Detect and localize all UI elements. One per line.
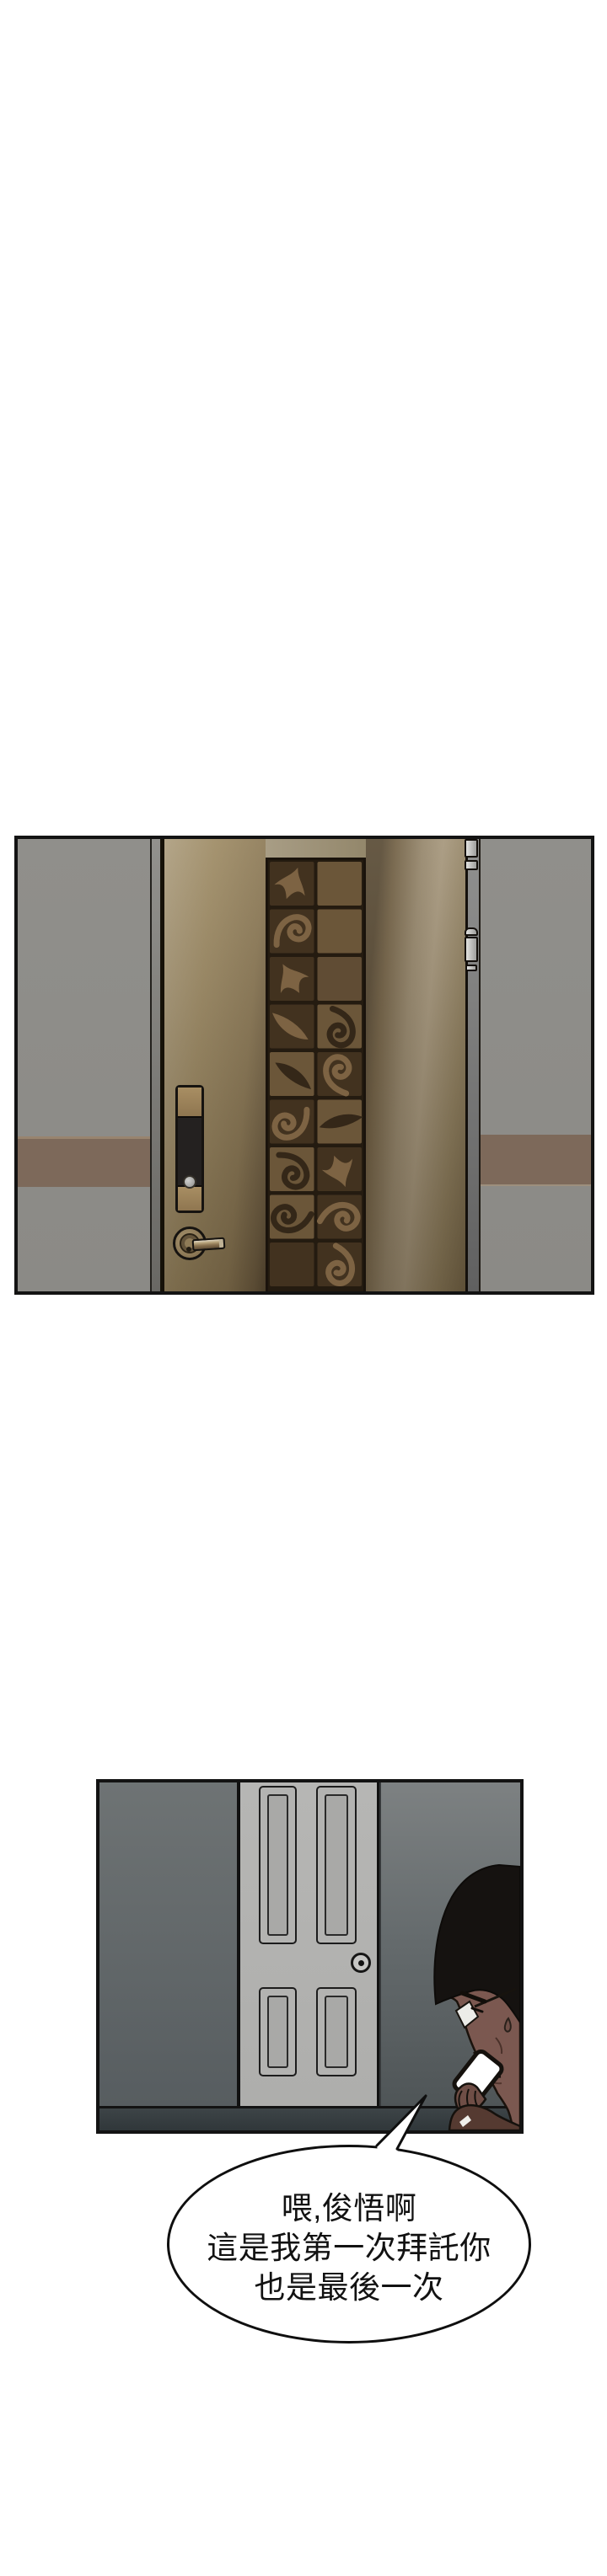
right-wall (481, 839, 591, 1291)
door-jamb-left (150, 839, 162, 1291)
panel-entry-door (14, 836, 594, 1295)
bubble-line-3: 也是最後一次 (255, 2268, 444, 2307)
lock-plate-bottom (178, 1185, 201, 1211)
speech-bubble: 喂,俊悟啊 這是我第一次拜託你 也是最後一次 (167, 2145, 531, 2344)
bubble-line-1: 喂,俊悟啊 (282, 2189, 417, 2228)
door-lever-handle (192, 1237, 226, 1252)
lock-plate-top (178, 1088, 201, 1118)
hinge-mid-base (465, 965, 477, 971)
hinge-mid-cap (465, 927, 478, 936)
wall-accent-stripe (481, 1135, 591, 1186)
tile-pattern (268, 860, 363, 1294)
panel-man-on-phone (96, 1779, 524, 2134)
door-recess-panel (259, 1786, 297, 1944)
lock-knob (183, 1175, 196, 1189)
tile-column-header (266, 839, 366, 858)
hinge-strip (465, 839, 481, 1291)
left-wall (18, 839, 150, 1291)
deadbolt-lock (175, 1085, 204, 1213)
door-recess-panel (259, 1987, 297, 2076)
bubble-line-2: 這是我第一次拜託你 (207, 2228, 492, 2268)
door-keyhole (351, 1953, 371, 1973)
hinge-top-b (465, 860, 478, 870)
keyhole-icon (186, 1247, 191, 1252)
wall-accent-stripe (18, 1136, 150, 1187)
hinge-top-a (465, 839, 478, 858)
door-recess-panel (316, 1786, 357, 1944)
entry-door (162, 839, 465, 1291)
hinge-mid-bar (465, 937, 478, 962)
webtoon-page: 喂,俊悟啊 這是我第一次拜託你 也是最後一次 (0, 0, 607, 2576)
door-recess-panel (316, 1987, 357, 2076)
hallway-wall-left (99, 1782, 237, 2106)
ornamental-tile-column (266, 858, 366, 1291)
speech-bubble-tail (363, 2089, 438, 2167)
sliding-door (237, 1782, 379, 2106)
